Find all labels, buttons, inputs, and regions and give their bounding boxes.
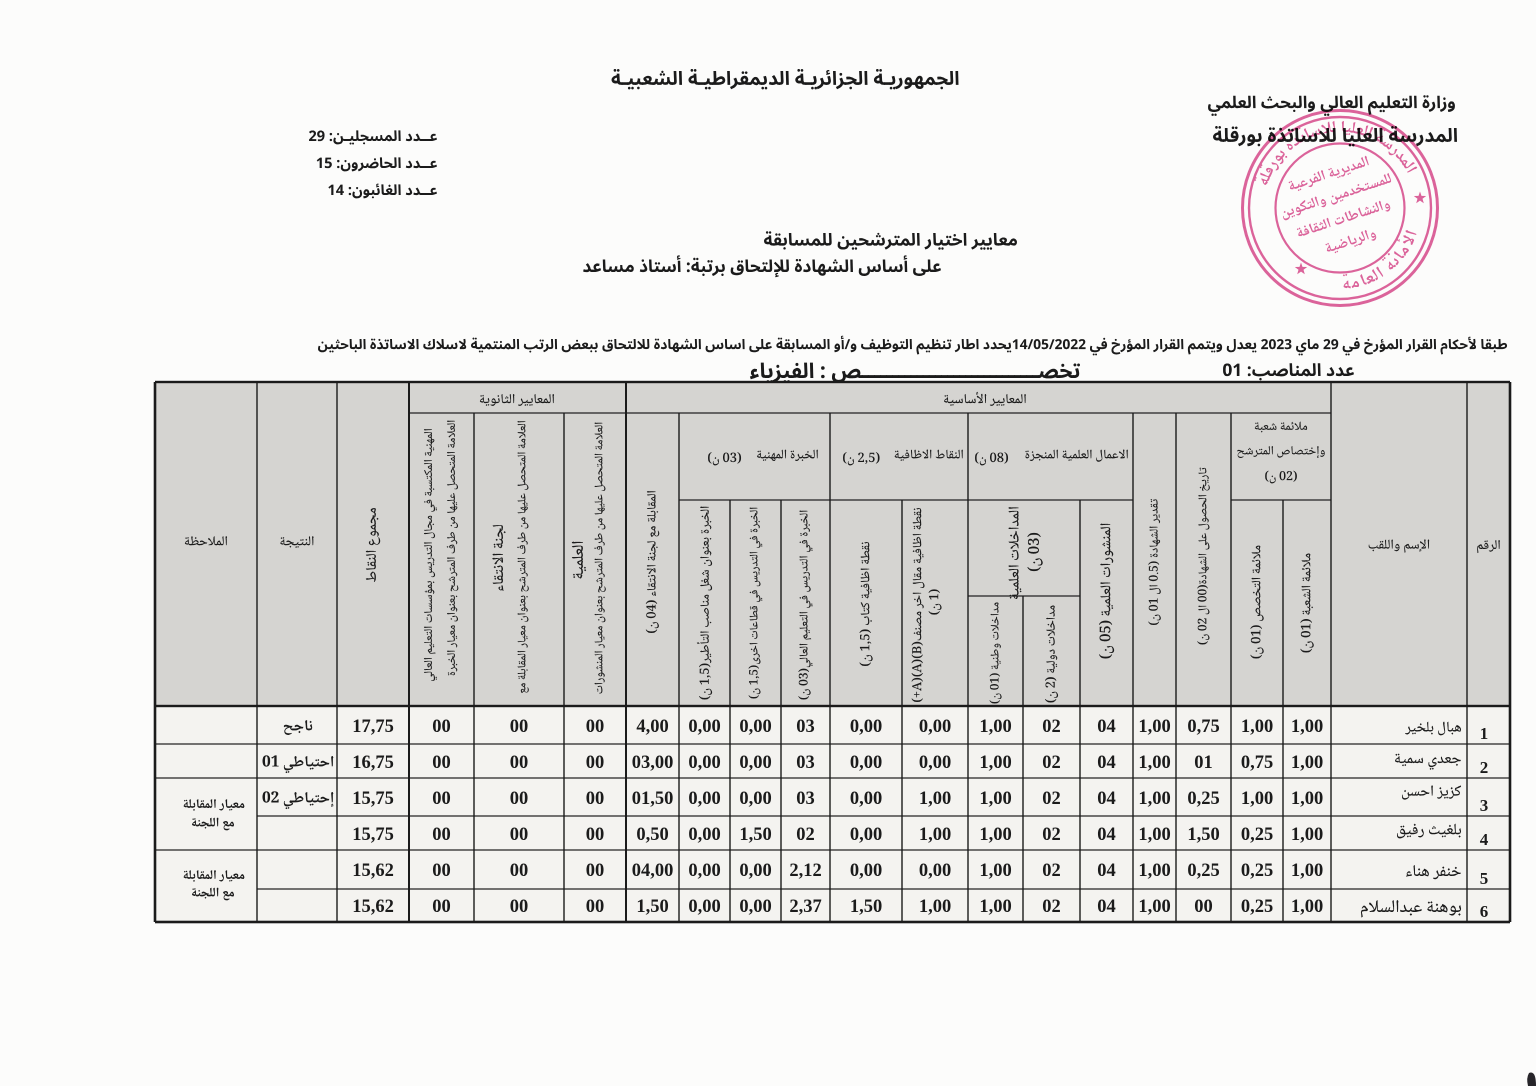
svg-text:1,00: 1,00 xyxy=(1241,717,1273,737)
svg-text:3: 3 xyxy=(1480,796,1489,815)
svg-text:0,25: 0,25 xyxy=(1241,825,1273,845)
svg-text:1,00: 1,00 xyxy=(1291,753,1323,773)
svg-text:1,00: 1,00 xyxy=(1138,861,1170,881)
svg-text:16,75: 16,75 xyxy=(352,753,394,773)
svg-text:15,75: 15,75 xyxy=(352,825,394,845)
svg-text:1,00: 1,00 xyxy=(1138,717,1170,737)
svg-text:1,00: 1,00 xyxy=(1291,717,1323,737)
svg-text:0,00: 0,00 xyxy=(739,753,771,773)
svg-text:01,50: 01,50 xyxy=(632,789,674,809)
svg-text:01: 01 xyxy=(1194,753,1213,773)
svg-text:0,00: 0,00 xyxy=(919,753,951,773)
svg-text:0,00: 0,00 xyxy=(850,789,882,809)
svg-text:00: 00 xyxy=(432,897,451,917)
svg-text:17,75: 17,75 xyxy=(352,717,394,737)
svg-text:00: 00 xyxy=(586,861,605,881)
svg-text:0,00: 0,00 xyxy=(688,825,720,845)
svg-text:0,00: 0,00 xyxy=(688,897,720,917)
svg-text:1,50: 1,50 xyxy=(739,825,771,845)
svg-text:5: 5 xyxy=(1480,869,1489,888)
svg-text:00: 00 xyxy=(1194,897,1213,917)
svg-text:1,00: 1,00 xyxy=(919,825,951,845)
svg-text:03: 03 xyxy=(796,717,815,737)
svg-text:02: 02 xyxy=(1042,789,1061,809)
svg-text:1: 1 xyxy=(1480,724,1489,743)
svg-text:15,75: 15,75 xyxy=(352,789,394,809)
svg-text:0,25: 0,25 xyxy=(1187,861,1219,881)
svg-text:15,62: 15,62 xyxy=(352,861,394,881)
svg-text:1,50: 1,50 xyxy=(636,897,668,917)
svg-text:0,00: 0,00 xyxy=(688,789,720,809)
svg-text:0,00: 0,00 xyxy=(850,861,882,881)
svg-text:00: 00 xyxy=(432,861,451,881)
svg-text:00: 00 xyxy=(586,825,605,845)
svg-text:0,00: 0,00 xyxy=(850,717,882,737)
svg-text:00: 00 xyxy=(510,753,529,773)
svg-text:02: 02 xyxy=(1042,753,1061,773)
svg-text:02: 02 xyxy=(1042,825,1061,845)
svg-text:2: 2 xyxy=(1480,758,1489,777)
svg-text:1,00: 1,00 xyxy=(1138,753,1170,773)
svg-text:1,00: 1,00 xyxy=(979,717,1011,737)
svg-text:0,00: 0,00 xyxy=(919,717,951,737)
svg-text:0,00: 0,00 xyxy=(688,717,720,737)
svg-text:03: 03 xyxy=(796,753,815,773)
svg-text:0,00: 0,00 xyxy=(739,861,771,881)
svg-text:04: 04 xyxy=(1097,861,1116,881)
svg-text:04: 04 xyxy=(1097,897,1116,917)
svg-text:04: 04 xyxy=(1097,825,1116,845)
svg-text:0,00: 0,00 xyxy=(739,897,771,917)
svg-text:1,50: 1,50 xyxy=(850,897,882,917)
svg-text:1,00: 1,00 xyxy=(979,789,1011,809)
svg-text:0,00: 0,00 xyxy=(739,717,771,737)
svg-text:0,50: 0,50 xyxy=(636,825,668,845)
svg-text:03: 03 xyxy=(796,789,815,809)
svg-text:00: 00 xyxy=(510,717,529,737)
svg-text:0,00: 0,00 xyxy=(688,861,720,881)
svg-text:02: 02 xyxy=(1042,897,1061,917)
svg-text:1,00: 1,00 xyxy=(1291,861,1323,881)
svg-text:00: 00 xyxy=(432,717,451,737)
svg-text:0,00: 0,00 xyxy=(850,825,882,845)
svg-text:04: 04 xyxy=(1097,753,1116,773)
svg-text:1,00: 1,00 xyxy=(979,861,1011,881)
svg-text:0,25: 0,25 xyxy=(1187,789,1219,809)
svg-text:00: 00 xyxy=(432,789,451,809)
svg-text:04: 04 xyxy=(1097,789,1116,809)
svg-text:0,25: 0,25 xyxy=(1241,897,1273,917)
svg-text:4,00: 4,00 xyxy=(636,717,668,737)
svg-text:02: 02 xyxy=(796,825,815,845)
svg-text:0,00: 0,00 xyxy=(919,861,951,881)
svg-text:0,00: 0,00 xyxy=(739,789,771,809)
svg-text:1,50: 1,50 xyxy=(1187,825,1219,845)
svg-text:0,75: 0,75 xyxy=(1241,753,1273,773)
svg-text:04: 04 xyxy=(1097,717,1116,737)
svg-text:02: 02 xyxy=(1042,861,1061,881)
svg-text:1,00: 1,00 xyxy=(1291,789,1323,809)
svg-text:1,00: 1,00 xyxy=(979,897,1011,917)
svg-text:0,00: 0,00 xyxy=(688,753,720,773)
svg-text:03,00: 03,00 xyxy=(632,753,674,773)
svg-text:2,37: 2,37 xyxy=(789,897,821,917)
svg-text:04,00: 04,00 xyxy=(632,861,674,881)
svg-text:0,75: 0,75 xyxy=(1187,717,1219,737)
svg-text:0,00: 0,00 xyxy=(850,753,882,773)
svg-text:4: 4 xyxy=(1480,830,1489,849)
svg-text:00: 00 xyxy=(510,789,529,809)
svg-text:1,00: 1,00 xyxy=(1138,897,1170,917)
svg-text:00: 00 xyxy=(586,717,605,737)
svg-text:1,00: 1,00 xyxy=(919,789,951,809)
svg-text:00: 00 xyxy=(586,897,605,917)
svg-text:6: 6 xyxy=(1480,902,1489,921)
svg-text:00: 00 xyxy=(510,825,529,845)
svg-text:02: 02 xyxy=(1042,717,1061,737)
svg-text:1,00: 1,00 xyxy=(1138,789,1170,809)
svg-text:00: 00 xyxy=(586,789,605,809)
svg-text:00: 00 xyxy=(586,753,605,773)
svg-text:1,00: 1,00 xyxy=(1291,897,1323,917)
svg-text:1,00: 1,00 xyxy=(1291,825,1323,845)
svg-text:00: 00 xyxy=(432,825,451,845)
svg-text:1,00: 1,00 xyxy=(979,825,1011,845)
svg-text:15,62: 15,62 xyxy=(352,897,394,917)
svg-text:1,00: 1,00 xyxy=(1241,789,1273,809)
svg-text:1,00: 1,00 xyxy=(979,753,1011,773)
svg-text:00: 00 xyxy=(432,753,451,773)
svg-text:00: 00 xyxy=(510,861,529,881)
svg-text:1,00: 1,00 xyxy=(919,897,951,917)
svg-text:00: 00 xyxy=(510,897,529,917)
svg-text:1,00: 1,00 xyxy=(1138,825,1170,845)
svg-text:2,12: 2,12 xyxy=(789,861,821,881)
svg-text:0,25: 0,25 xyxy=(1241,861,1273,881)
